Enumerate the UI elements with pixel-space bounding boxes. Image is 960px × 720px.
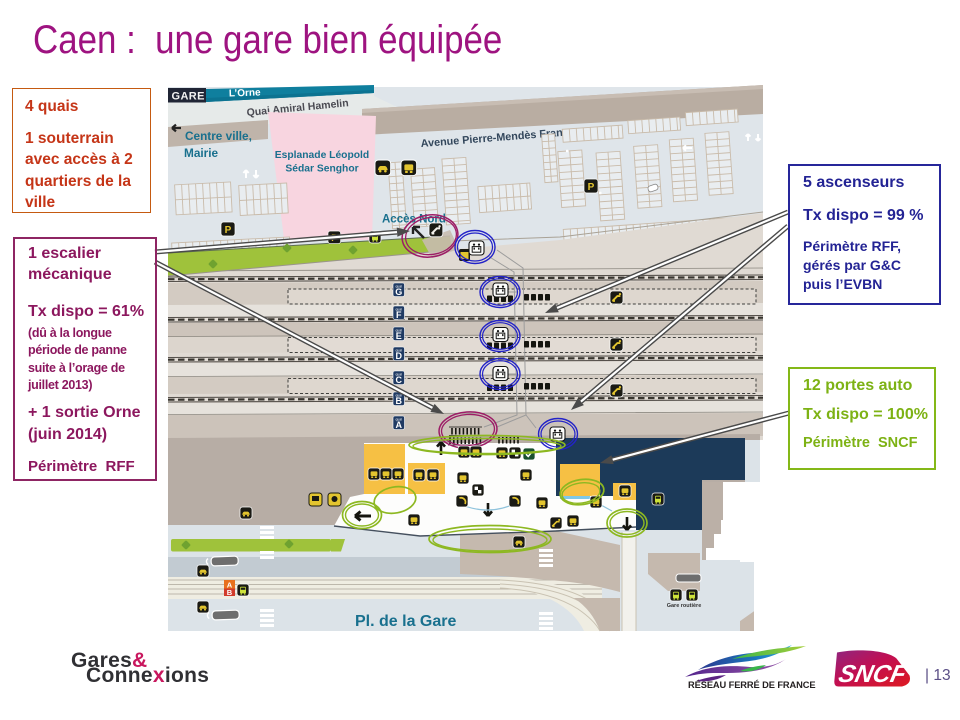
svg-text:F: F (396, 310, 402, 320)
svg-text:Gare routière: Gare routière (667, 603, 702, 609)
svg-text:B: B (395, 396, 402, 406)
svg-text:Mairie: Mairie (184, 146, 219, 160)
svg-text:C: C (395, 375, 402, 385)
svg-text:E: E (396, 331, 402, 341)
svg-text:B: B (227, 588, 233, 597)
svg-text:Sédar Senghor: Sédar Senghor (285, 164, 358, 175)
svg-text:Pl. de la Gare: Pl. de la Gare (355, 613, 456, 630)
svg-text:G: G (395, 287, 402, 297)
svg-text:GARE: GARE (172, 91, 205, 103)
svg-text:L’Orne: L’Orne (229, 87, 261, 99)
svg-text:Centre ville,: Centre ville, (185, 129, 252, 143)
svg-text:SNCF: SNCF (836, 661, 909, 688)
svg-text:A: A (395, 420, 402, 430)
svg-text:Esplanade Léopold: Esplanade Léopold (275, 150, 369, 161)
svg-text:D: D (395, 351, 402, 361)
svg-text:RÉSEAU FERRÉ DE FRANCE: RÉSEAU FERRÉ DE FRANCE (688, 680, 815, 690)
